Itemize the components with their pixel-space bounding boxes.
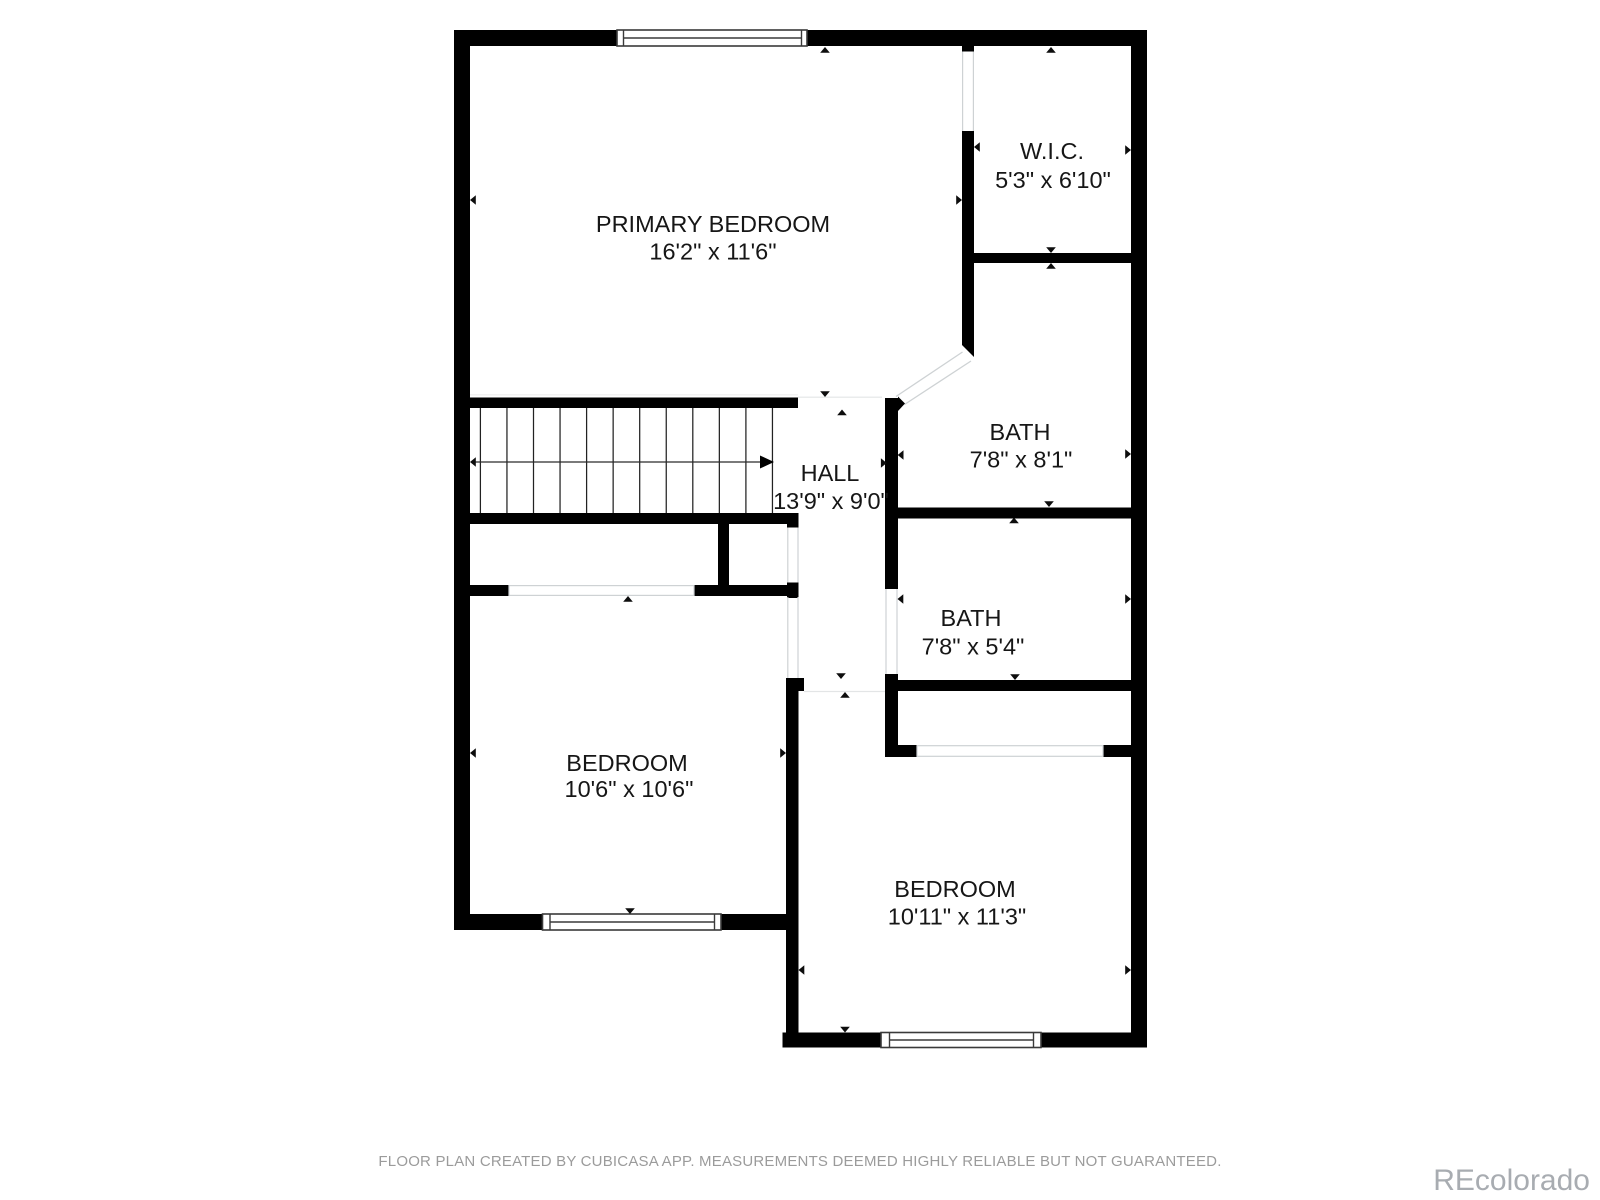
svg-text:BEDROOM: BEDROOM bbox=[566, 750, 687, 776]
svg-text:16'2" x 11'6": 16'2" x 11'6" bbox=[649, 239, 776, 265]
svg-text:FLOOR PLAN CREATED BY CUBICASA: FLOOR PLAN CREATED BY CUBICASA APP. MEAS… bbox=[378, 1153, 1221, 1170]
svg-text:13'9" x 9'0": 13'9" x 9'0" bbox=[773, 488, 889, 514]
svg-text:BEDROOM: BEDROOM bbox=[894, 876, 1015, 902]
svg-text:10'6" x 10'6": 10'6" x 10'6" bbox=[565, 776, 694, 802]
svg-text:HALL: HALL bbox=[801, 460, 860, 486]
svg-text:PRIMARY BEDROOM: PRIMARY BEDROOM bbox=[596, 211, 830, 237]
svg-text:10'11" x 11'3": 10'11" x 11'3" bbox=[888, 904, 1026, 930]
svg-text:BATH: BATH bbox=[941, 605, 1002, 631]
svg-text:7'8" x 8'1": 7'8" x 8'1" bbox=[970, 447, 1073, 473]
svg-text:REcolorado: REcolorado bbox=[1433, 1164, 1590, 1197]
svg-text:5'3" x 6'10": 5'3" x 6'10" bbox=[995, 167, 1111, 193]
svg-text:BATH: BATH bbox=[990, 419, 1051, 445]
svg-text:W.I.C.: W.I.C. bbox=[1020, 138, 1084, 164]
svg-text:7'8" x 5'4": 7'8" x 5'4" bbox=[922, 634, 1025, 660]
